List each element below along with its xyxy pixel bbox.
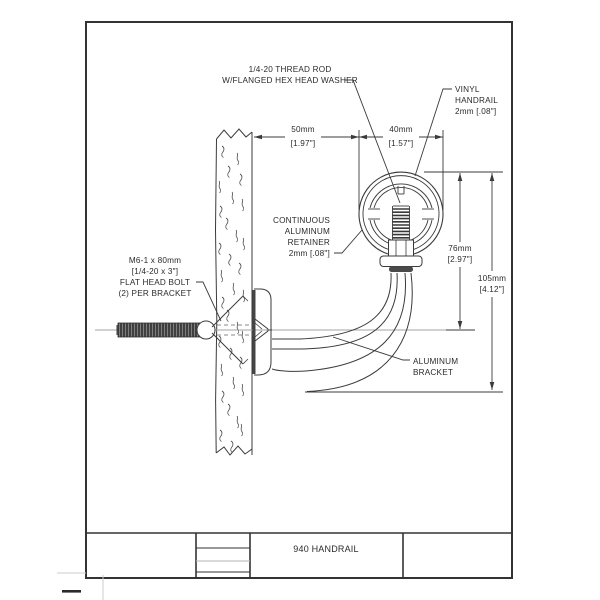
leader-line — [415, 89, 452, 176]
bracket-plate-outline — [254, 289, 271, 375]
wall-left-edge — [216, 139, 217, 453]
dim-105-in: [4.12"] — [480, 285, 505, 294]
thread-rod-label-line2: W/FLANGED HEX HEAD WASHER — [222, 76, 358, 85]
technical-drawing: 940 HANDRAIL — [0, 0, 600, 600]
wall-break-bottom — [216, 446, 252, 455]
vinyl-label-line2: HANDRAIL — [455, 96, 498, 105]
label-flat-head-bolt: M6-1 x 80mm [1/4-20 x 3"] FLAT HEAD BOLT… — [118, 256, 221, 321]
wall-section — [216, 129, 253, 455]
flanged-washer — [380, 256, 422, 267]
vinyl-label-line1: VINYL — [455, 85, 480, 94]
dimension-76mm: 76mm [2.97"] — [424, 172, 503, 330]
toggle-anchor — [197, 321, 215, 339]
bolt-label-line1: M6-1 x 80mm — [129, 256, 181, 265]
dim-40-in: [1.57"] — [389, 139, 414, 148]
bracket-arm — [272, 273, 412, 392]
retainer-label-line2: ALUMINUM — [285, 227, 330, 236]
dimension-40mm: 40mm [1.57"] — [359, 125, 443, 210]
hex-nut-and-washer — [380, 240, 422, 272]
retainer-label-line4: 2mm [.08"] — [289, 249, 330, 258]
label-vinyl-handrail: VINYL HANDRAIL 2mm [.08"] — [415, 85, 498, 176]
dimension-50mm: 50mm [1.97"] — [254, 125, 359, 210]
dim-50-mm: 50mm — [291, 125, 315, 134]
leader-line — [333, 337, 410, 360]
vinyl-label-line3: 2mm [.08"] — [455, 107, 496, 116]
threaded-stud — [393, 206, 410, 240]
handrail-cross-section — [359, 172, 443, 272]
leader-line — [334, 230, 362, 253]
drawing-sheet: 940 HANDRAIL — [0, 0, 600, 600]
title-block: 940 HANDRAIL — [86, 533, 512, 578]
gasket — [389, 267, 413, 273]
bracket-label-line1: ALUMINUM — [413, 357, 458, 366]
bolt-label-line2: [1/4-20 x 3"] — [132, 267, 178, 276]
dim-40-mm: 40mm — [389, 125, 413, 134]
thread-rod-label-line1: 1/4-20 THREAD ROD — [249, 65, 332, 74]
bolt-label-line3: FLAT HEAD BOLT — [120, 278, 190, 287]
threaded-rod — [118, 323, 201, 337]
label-aluminum-bracket: ALUMINUM BRACKET — [333, 337, 458, 377]
dim-50-in: [1.97"] — [291, 139, 316, 148]
aluminum-bracket — [254, 273, 412, 392]
dim-76-mm: 76mm — [448, 244, 472, 253]
label-retainer: CONTINUOUS ALUMINUM RETAINER 2mm [.08"] — [273, 216, 362, 258]
dim-105-mm: 105mm — [478, 274, 506, 283]
leader-line — [196, 282, 221, 321]
retainer-label-line1: CONTINUOUS — [273, 216, 330, 225]
wall-break-top — [217, 129, 253, 139]
bracket-label-line2: BRACKET — [413, 368, 453, 377]
sheet-border — [86, 22, 512, 578]
retainer-label-line3: RETAINER — [288, 238, 330, 247]
title-block-title: 940 HANDRAIL — [293, 544, 358, 554]
dim-76-in: [2.97"] — [448, 255, 473, 264]
wall-hatching — [219, 146, 245, 453]
bolt-label-line4: (2) PER BRACKET — [118, 289, 191, 298]
